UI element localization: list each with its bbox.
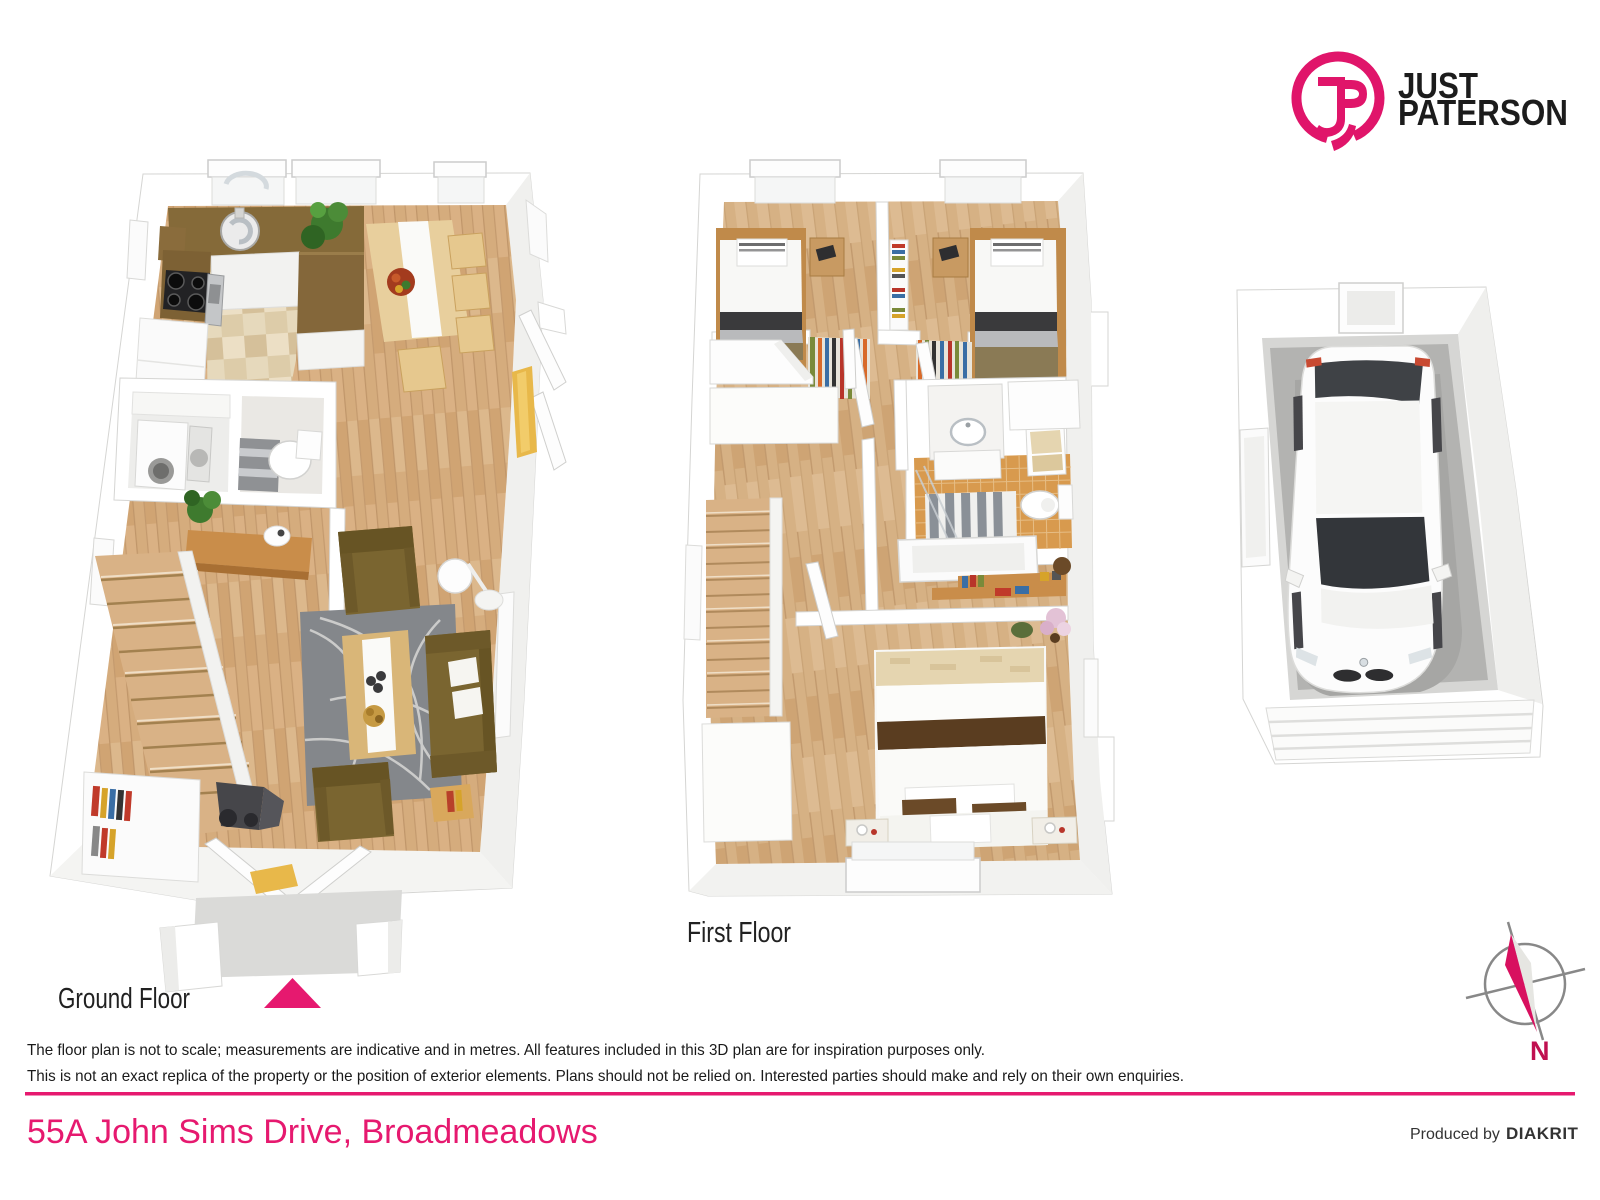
svg-text:First Floor: First Floor <box>687 917 791 949</box>
svg-text:55A John Sims Drive, Broadmead: 55A John Sims Drive, Broadmeadows <box>27 1113 598 1151</box>
svg-text:N: N <box>1530 1036 1550 1066</box>
svg-text:The floor plan is not to scale: The floor plan is not to scale; measurem… <box>27 1042 985 1059</box>
svg-text:This is not an exact replica o: This is not an exact replica of the prop… <box>27 1068 1184 1085</box>
svg-text:DIAKRIT: DIAKRIT <box>1506 1124 1579 1143</box>
svg-text:Produced by: Produced by <box>1410 1126 1500 1143</box>
svg-text:PATERSON: PATERSON <box>1398 92 1568 133</box>
svg-text:Ground Floor: Ground Floor <box>58 983 190 1015</box>
